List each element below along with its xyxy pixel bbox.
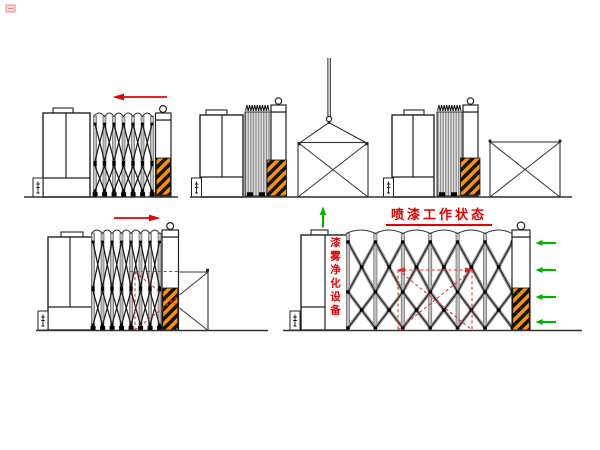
crate bbox=[298, 143, 368, 198]
booth-cabinet bbox=[48, 232, 92, 330]
crane-hook-icon bbox=[300, 58, 367, 143]
diagram-folded-booth-retracting bbox=[33, 94, 171, 197]
spray-working-state-title: 喷漆工作状态 bbox=[386, 204, 492, 226]
folded-curtain bbox=[91, 230, 162, 330]
green-arrow-up-icon bbox=[320, 207, 327, 228]
diagram-svg bbox=[0, 0, 600, 450]
hazard-stripe-block bbox=[461, 158, 481, 195]
green-arrow-left-icon bbox=[536, 267, 557, 273]
end-post bbox=[512, 222, 530, 330]
green-arrow-left-icon bbox=[536, 319, 557, 325]
cabinet-control-box bbox=[33, 178, 43, 197]
curtain-top-wave bbox=[92, 230, 162, 234]
red-arrow-left-icon bbox=[113, 94, 168, 101]
cabinet-control-box bbox=[290, 311, 300, 330]
folded-curtain bbox=[93, 113, 155, 196]
end-post bbox=[156, 106, 172, 196]
cabinet-control-box bbox=[384, 178, 394, 197]
crate-partially-hidden bbox=[180, 269, 210, 331]
hazard-stripe-block bbox=[267, 160, 287, 196]
red-arrow-right-icon bbox=[114, 215, 161, 222]
hazard-stripe-block bbox=[163, 288, 178, 330]
compressed-curtain bbox=[437, 105, 463, 196]
curtain-top-wave bbox=[346, 230, 512, 234]
booth-cabinet bbox=[200, 110, 243, 197]
diagram-compressed-booth-crate-placed bbox=[384, 98, 562, 197]
watermark-stamp-icon bbox=[6, 5, 15, 12]
screenshot-canvas: 喷漆工作状态 漆雾净化设备 bbox=[0, 0, 600, 450]
booth-cabinet bbox=[43, 108, 90, 197]
purifier-equipment-label: 漆雾净化设备 bbox=[328, 237, 342, 318]
end-post bbox=[162, 223, 179, 330]
crate bbox=[489, 140, 562, 197]
green-arrow-left-icon bbox=[536, 240, 557, 246]
booth-cabinet bbox=[392, 110, 434, 197]
cabinet-control-box bbox=[38, 311, 48, 330]
diagram-booth-extending bbox=[38, 215, 209, 331]
hazard-stripe-block bbox=[156, 158, 170, 195]
green-airflow-arrows bbox=[536, 240, 557, 325]
curtain-top-wave bbox=[94, 113, 154, 117]
extended-curtain bbox=[346, 230, 514, 329]
green-arrow-left-icon bbox=[536, 294, 557, 300]
hazard-stripe-block bbox=[513, 288, 530, 330]
cabinet-control-box bbox=[192, 178, 202, 197]
diagram-compressed-booth-crate-lifting bbox=[192, 58, 369, 197]
